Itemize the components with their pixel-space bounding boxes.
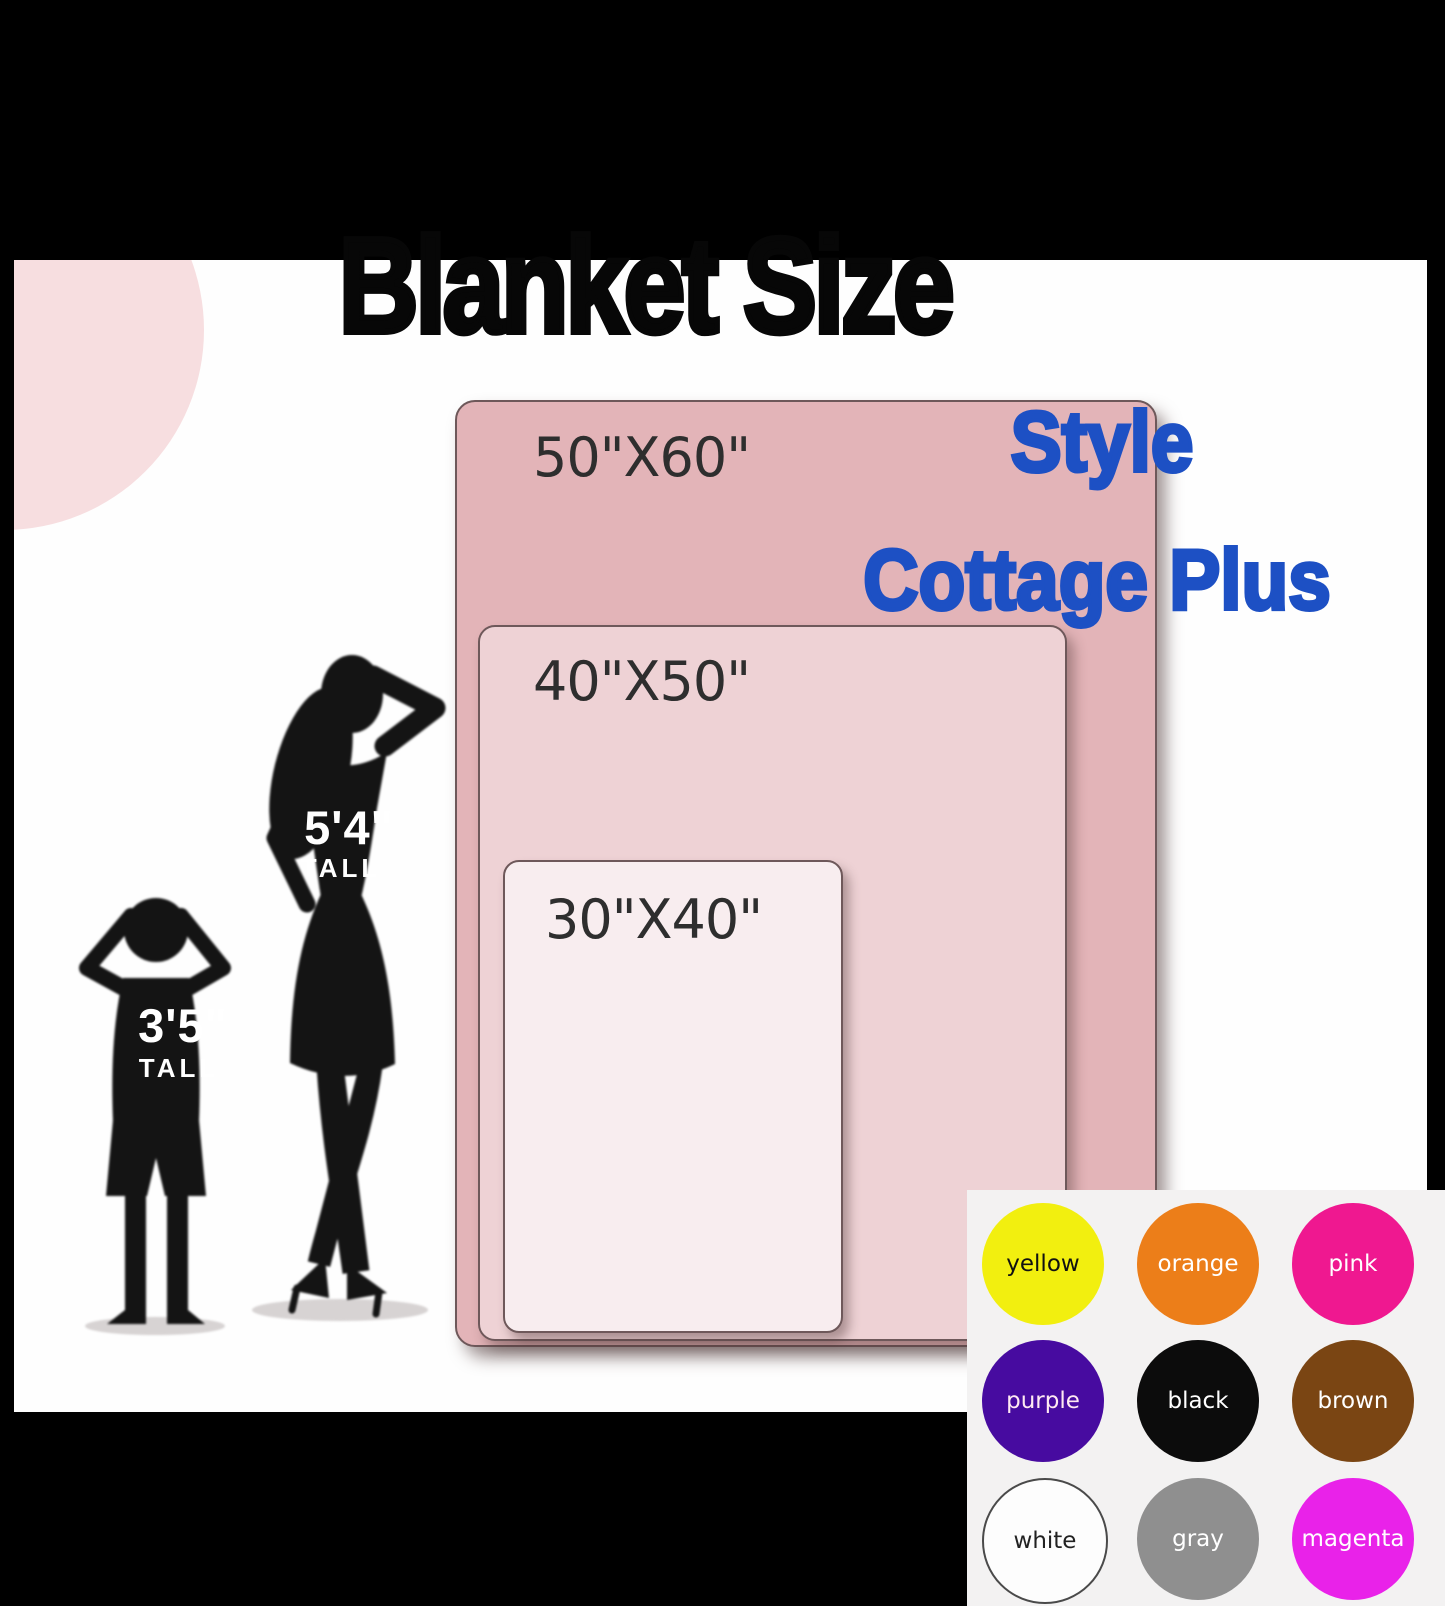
color-swatch-magenta: magenta <box>1292 1478 1414 1600</box>
child-silhouette-graphic <box>75 890 235 1335</box>
woman-tall-label: TALL <box>301 853 382 884</box>
style-name: Cottage Plus <box>863 538 1331 623</box>
color-options-panel: yellow orange pink purple black brown wh… <box>967 1190 1445 1606</box>
woman-height-label: 5'4" <box>304 800 394 855</box>
color-swatch-brown: brown <box>1292 1340 1414 1462</box>
blanket-40x50-size-label: 40"X50" <box>533 650 750 713</box>
child-silhouette: 3'5" TALL <box>75 890 235 1335</box>
woman-silhouette: 5'4" TALL <box>235 648 447 1325</box>
child-tall-label: TALL <box>139 1053 220 1084</box>
color-swatch-white: white <box>982 1478 1108 1604</box>
color-swatch-purple: purple <box>982 1340 1104 1462</box>
blanket-50x60-size-label: 50"X60" <box>533 426 750 489</box>
style-heading: Style <box>1011 400 1194 485</box>
color-swatch-pink: pink <box>1292 1203 1414 1325</box>
page-title: Blanket Size <box>339 218 952 353</box>
corner-circle-decoration <box>14 260 204 530</box>
blanket-30x40-size-label: 30"X40" <box>545 888 762 951</box>
color-swatch-gray: gray <box>1137 1478 1259 1600</box>
blanket-size-infographic: Blanket Size 50"X60" 40"X50" 30"X40" Sty… <box>0 0 1445 1606</box>
woman-silhouette-graphic <box>235 648 447 1325</box>
color-swatch-yellow: yellow <box>982 1203 1104 1325</box>
color-swatch-black: black <box>1137 1340 1259 1462</box>
color-swatch-orange: orange <box>1137 1203 1259 1325</box>
child-height-label: 3'5" <box>138 998 228 1053</box>
